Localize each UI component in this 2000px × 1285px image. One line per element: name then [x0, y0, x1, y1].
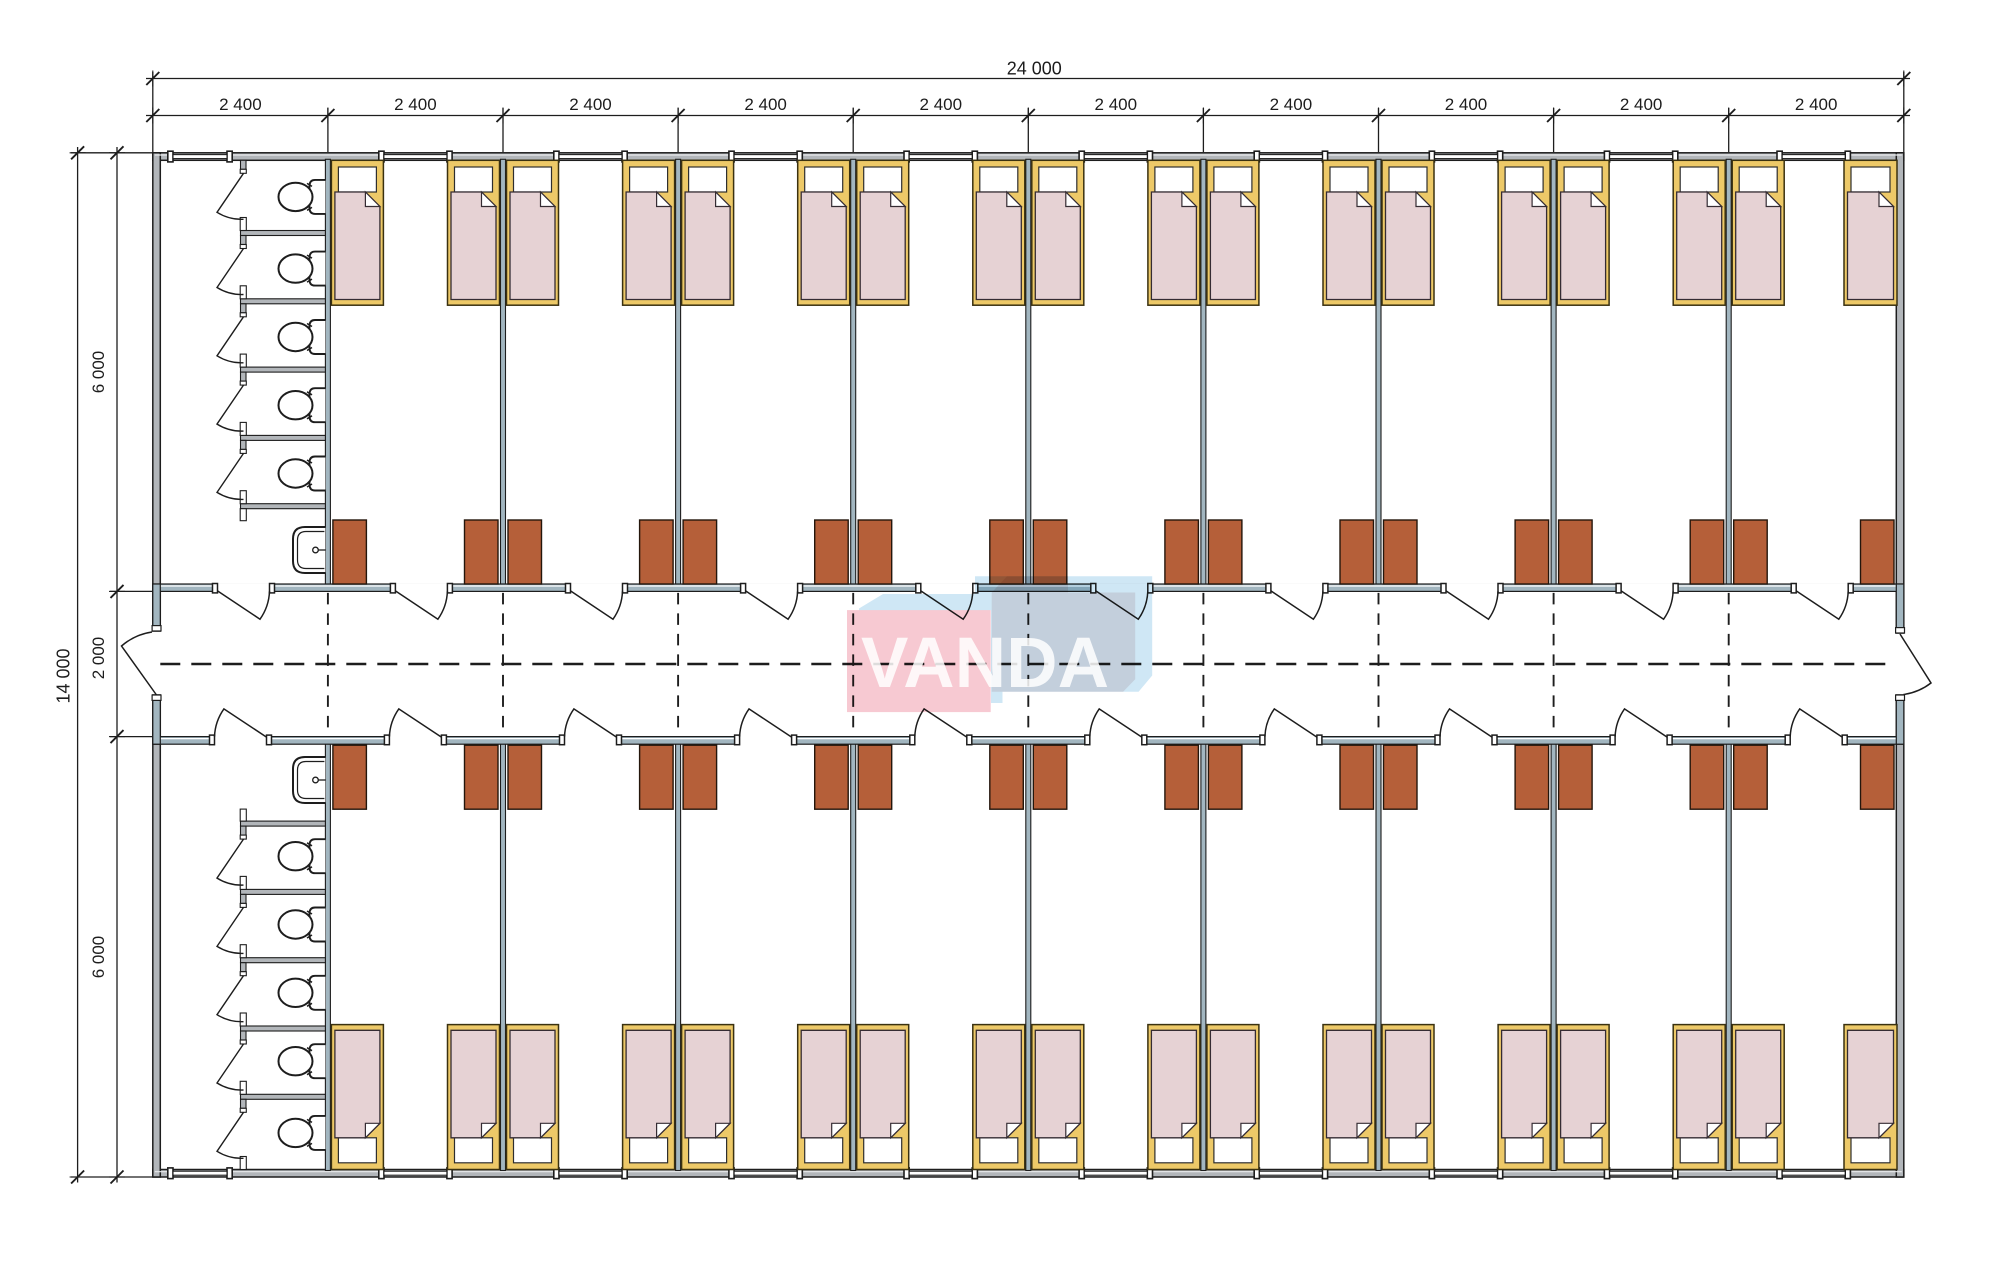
svg-text:2 400: 2 400: [1795, 95, 1838, 114]
svg-text:2 400: 2 400: [569, 95, 612, 114]
svg-text:14 000: 14 000: [54, 648, 74, 703]
svg-text:2 400: 2 400: [219, 95, 262, 114]
svg-text:6 000: 6 000: [89, 936, 108, 979]
svg-text:2 400: 2 400: [1270, 95, 1313, 114]
svg-text:2 400: 2 400: [920, 95, 963, 114]
svg-text:24 000: 24 000: [1007, 59, 1062, 79]
svg-text:2 400: 2 400: [744, 95, 787, 114]
svg-text:2 400: 2 400: [1445, 95, 1488, 114]
svg-text:2 400: 2 400: [394, 95, 437, 114]
svg-text:2 000: 2 000: [89, 637, 108, 680]
svg-text:2 400: 2 400: [1095, 95, 1138, 114]
svg-text:VANDA: VANDA: [861, 624, 1109, 703]
svg-text:2 400: 2 400: [1620, 95, 1663, 114]
svg-text:6 000: 6 000: [89, 351, 108, 394]
